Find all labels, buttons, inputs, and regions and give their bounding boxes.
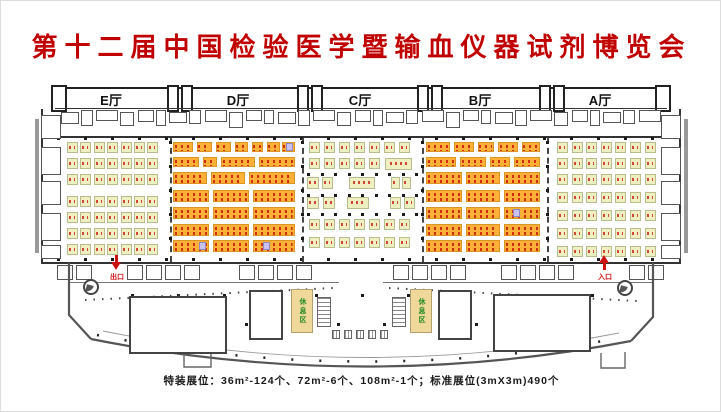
column [169, 237, 172, 240]
booth-strip [522, 142, 540, 152]
booth-strip [173, 190, 209, 202]
booth [402, 177, 411, 189]
column [516, 258, 519, 261]
entrance-arrow-head [599, 255, 609, 263]
booth [80, 196, 91, 207]
service-room [138, 110, 154, 122]
column [402, 213, 405, 216]
service-room [446, 112, 460, 128]
booth [572, 246, 583, 257]
lobby-top-wall-left [69, 282, 339, 283]
hall-label: E厅 [100, 90, 122, 109]
corridor-room [412, 265, 428, 280]
booth [630, 174, 641, 185]
service-room [278, 112, 296, 124]
booth [586, 142, 597, 153]
column [388, 213, 391, 216]
booth-special [263, 242, 270, 250]
booth-strip [460, 157, 486, 167]
column [489, 137, 492, 140]
booth [572, 192, 583, 203]
service-room [61, 112, 79, 124]
column [273, 137, 276, 140]
hall-label: B厅 [469, 90, 491, 109]
corridor-room [146, 265, 162, 280]
right-outer-wall [684, 119, 688, 253]
expo-floorplan: 第十二届中国检验医学暨输血仪器试剂博览会 E厅D厅C厅B厅A厅 休息区 休息区 … [0, 0, 721, 412]
booth [324, 158, 335, 169]
column [591, 294, 594, 297]
booth [309, 158, 320, 169]
service-room [572, 110, 588, 122]
hall-divider [302, 138, 304, 262]
booth [390, 197, 401, 209]
stair-step [380, 330, 388, 339]
booth-strip [253, 207, 295, 219]
booth [107, 174, 118, 185]
booth [67, 158, 78, 169]
booth [404, 197, 415, 209]
booth-strip [253, 190, 295, 202]
column [516, 137, 519, 140]
booth [134, 158, 145, 169]
column [361, 173, 364, 176]
column [546, 141, 549, 144]
column [415, 173, 418, 176]
booth [645, 246, 656, 257]
booth [80, 142, 91, 153]
floor-top-wall [41, 136, 681, 138]
column [381, 258, 384, 261]
column [301, 141, 304, 144]
booth [67, 228, 78, 239]
service-room [189, 110, 201, 124]
booth [94, 142, 105, 153]
booth-strip [267, 142, 280, 152]
booth [307, 177, 319, 189]
corridor-room [296, 265, 312, 280]
column [301, 165, 304, 168]
booth-strip [498, 142, 518, 152]
booth-strip [235, 142, 248, 152]
booth-strip [221, 157, 255, 167]
column [375, 194, 378, 197]
service-room [120, 112, 134, 126]
booth-strip [490, 157, 510, 167]
column [138, 258, 141, 261]
stair-step [332, 330, 340, 339]
service-room [530, 110, 552, 121]
column [489, 258, 492, 261]
lounge-label: 休息区 [297, 298, 307, 325]
hall-label: C厅 [349, 90, 371, 109]
booth [307, 197, 319, 209]
booth-strip [504, 224, 540, 236]
service-room [603, 112, 621, 123]
column [435, 258, 438, 261]
column [415, 213, 418, 216]
booth [557, 246, 568, 257]
column [415, 194, 418, 197]
stair-room [661, 213, 681, 241]
booth-strip [514, 157, 540, 167]
service-room [481, 110, 491, 124]
service-room [246, 110, 262, 121]
column [165, 137, 168, 140]
corridor-room [76, 265, 92, 280]
booth [107, 158, 118, 169]
column [111, 258, 114, 261]
column [375, 213, 378, 216]
booth [134, 174, 145, 185]
column [421, 165, 424, 168]
column [321, 173, 324, 176]
column [307, 173, 310, 176]
booth-strip [173, 207, 209, 219]
corridor-room [558, 265, 574, 280]
booth-strip [504, 207, 540, 219]
column [546, 165, 549, 168]
column [169, 189, 172, 192]
corridor-room [57, 265, 73, 280]
column [348, 213, 351, 216]
service-room [515, 110, 527, 126]
booth [601, 174, 612, 185]
hall-divider [547, 138, 549, 262]
stair-room [41, 213, 61, 241]
corridor-room [648, 265, 664, 280]
corridor-room [239, 265, 255, 280]
column [383, 323, 386, 326]
column [651, 137, 654, 140]
column [301, 237, 304, 240]
corridor-room [184, 265, 200, 280]
booth-strip [426, 142, 450, 152]
column [219, 137, 222, 140]
booth [80, 244, 91, 255]
corridor-room [539, 265, 555, 280]
booth [645, 158, 656, 169]
booth [384, 237, 395, 248]
booth-strip [426, 224, 462, 236]
booth [630, 210, 641, 221]
booth [80, 228, 91, 239]
booth-strip [213, 240, 249, 252]
booth [391, 177, 400, 189]
column [273, 258, 276, 261]
column [348, 173, 351, 176]
booth [630, 246, 641, 257]
column [388, 173, 391, 176]
booth [94, 244, 105, 255]
booth [557, 192, 568, 203]
column [570, 137, 573, 140]
lobby-room-right-small [438, 290, 472, 340]
booth [121, 142, 132, 153]
column [84, 258, 87, 261]
booth-statistics: 特装展位：36m²-124个、72m²-6个、108m²-1个；标准展位(3mX… [1, 373, 721, 388]
lobby-room-left-small [249, 290, 283, 340]
booth [134, 142, 145, 153]
column [408, 137, 411, 140]
column [327, 137, 330, 140]
booth [557, 142, 568, 153]
exit-label: 出口 [110, 272, 124, 282]
booth-strip [466, 172, 500, 184]
booth-strip [211, 172, 245, 184]
booth [339, 219, 350, 230]
service-room [355, 110, 371, 122]
booth [369, 219, 380, 230]
corridor-room [629, 265, 645, 280]
booth-strip [466, 207, 500, 219]
booth [121, 212, 132, 223]
booth [107, 196, 118, 207]
booth [107, 228, 118, 239]
lounge-area-left: 休息区 [291, 289, 313, 333]
stair-step [356, 330, 364, 339]
booth-strip [197, 142, 212, 152]
column [138, 137, 141, 140]
booth [94, 228, 105, 239]
corridor-room [127, 265, 143, 280]
booth-strip [504, 240, 540, 252]
service-room [81, 110, 93, 126]
booth [94, 212, 105, 223]
booth [399, 142, 410, 153]
stair-step [344, 330, 352, 339]
column [327, 258, 330, 261]
service-room [169, 112, 187, 123]
booth [67, 196, 78, 207]
booth-strip [173, 142, 193, 152]
service-room [205, 110, 227, 122]
booth [572, 174, 583, 185]
booth [586, 228, 597, 239]
booth-strip [213, 207, 249, 219]
booth [615, 228, 626, 239]
column [111, 137, 114, 140]
booth [557, 228, 568, 239]
service-room [96, 110, 118, 121]
column [361, 294, 364, 297]
service-room [422, 110, 444, 122]
column [402, 173, 405, 176]
lobby-room-left-large [129, 296, 227, 354]
booth [349, 177, 375, 189]
booth [67, 142, 78, 153]
service-room [386, 112, 404, 123]
column [307, 213, 310, 216]
booth [322, 177, 333, 189]
stair-step [368, 330, 376, 339]
booth [572, 158, 583, 169]
booth-strip [213, 190, 249, 202]
column [219, 258, 222, 261]
booth [645, 142, 656, 153]
column [462, 258, 465, 261]
column [546, 213, 549, 216]
booth-strip [249, 172, 295, 184]
column [651, 258, 654, 261]
booth [67, 244, 78, 255]
booth-strip [203, 157, 217, 167]
booth [121, 196, 132, 207]
service-room [298, 110, 310, 126]
booth-strip [253, 224, 295, 236]
booth [630, 192, 641, 203]
column [321, 213, 324, 216]
service-room [406, 110, 418, 124]
booth-special [286, 143, 293, 151]
stair-room [661, 245, 681, 259]
service-room [463, 110, 479, 121]
corridor-room [277, 265, 293, 280]
booth [615, 246, 626, 257]
booth-strip [426, 157, 456, 167]
booth [339, 142, 350, 153]
booth [369, 237, 380, 248]
corridor-room [258, 265, 274, 280]
column [543, 258, 546, 261]
booth [339, 158, 350, 169]
booth [323, 197, 335, 209]
booth [107, 212, 118, 223]
booth-strip [173, 157, 199, 167]
booth-special [199, 242, 206, 250]
booth [354, 142, 365, 153]
booth [147, 158, 158, 169]
exit-arrow [115, 255, 118, 262]
service-room [313, 110, 335, 121]
column [192, 258, 195, 261]
entrance-arrow [603, 263, 606, 270]
booth [94, 158, 105, 169]
column [624, 258, 627, 261]
booth [586, 210, 597, 221]
booth-strip [173, 224, 209, 236]
booth [601, 142, 612, 153]
booth [385, 158, 412, 170]
column [624, 137, 627, 140]
booth [399, 237, 410, 248]
stair-room [41, 147, 61, 175]
column [435, 137, 438, 140]
column [421, 213, 424, 216]
booth [630, 142, 641, 153]
booth [369, 158, 380, 169]
booth [107, 244, 118, 255]
booth [645, 228, 656, 239]
stair-room [41, 115, 61, 139]
spiral-stair-right-icon [617, 280, 633, 296]
column [337, 323, 340, 326]
booth [339, 237, 350, 248]
booth [572, 142, 583, 153]
booth [601, 192, 612, 203]
booth [354, 237, 365, 248]
booth [399, 219, 410, 230]
entrance-label: 入口 [598, 272, 612, 282]
service-room [229, 112, 243, 128]
corridor-room [520, 265, 536, 280]
booth [369, 142, 380, 153]
booth [134, 228, 145, 239]
booth-strip [213, 224, 249, 236]
column [421, 141, 424, 144]
booth [324, 219, 335, 230]
booth-strip [504, 190, 540, 202]
service-room [639, 110, 661, 122]
booth-strip [466, 240, 500, 252]
booth [354, 158, 365, 169]
service-room [373, 110, 383, 126]
booth-strip [173, 172, 207, 184]
hall-label: D厅 [227, 90, 249, 109]
column [421, 237, 424, 240]
booth-strip [426, 172, 462, 184]
booth [572, 210, 583, 221]
booth [615, 192, 626, 203]
booth [630, 158, 641, 169]
hall-divider [422, 138, 424, 262]
booth [324, 237, 335, 248]
booth [615, 142, 626, 153]
column [354, 258, 357, 261]
lounge-area-right: 休息区 [410, 289, 432, 333]
booth-strip [426, 190, 462, 202]
booth [601, 210, 612, 221]
column [421, 189, 424, 192]
booth [309, 237, 320, 248]
stair-room [661, 181, 681, 205]
column [354, 137, 357, 140]
booth-special [513, 209, 520, 217]
column [246, 137, 249, 140]
booth-strip [454, 142, 474, 152]
column [570, 258, 573, 261]
left-outer-wall [35, 119, 39, 253]
escalator-left-icon [317, 297, 331, 327]
booth [147, 212, 158, 223]
stair-room [41, 245, 61, 259]
booth [121, 228, 132, 239]
booth [645, 210, 656, 221]
booth [107, 142, 118, 153]
booth-strip [253, 240, 295, 252]
column [543, 137, 546, 140]
booth [645, 174, 656, 185]
column [301, 213, 304, 216]
column [408, 258, 411, 261]
exit-arrow-head [111, 262, 121, 270]
booth [557, 210, 568, 221]
booth [615, 210, 626, 221]
booth [80, 212, 91, 223]
booth [557, 174, 568, 185]
booth [384, 142, 395, 153]
booth-strip [466, 190, 500, 202]
corridor-room [165, 265, 181, 280]
column [165, 258, 168, 261]
booth [354, 219, 365, 230]
booth [309, 142, 320, 153]
hall-divider [170, 138, 172, 262]
booth [601, 158, 612, 169]
stair-room [41, 181, 61, 205]
booth [347, 197, 369, 209]
booth [586, 192, 597, 203]
